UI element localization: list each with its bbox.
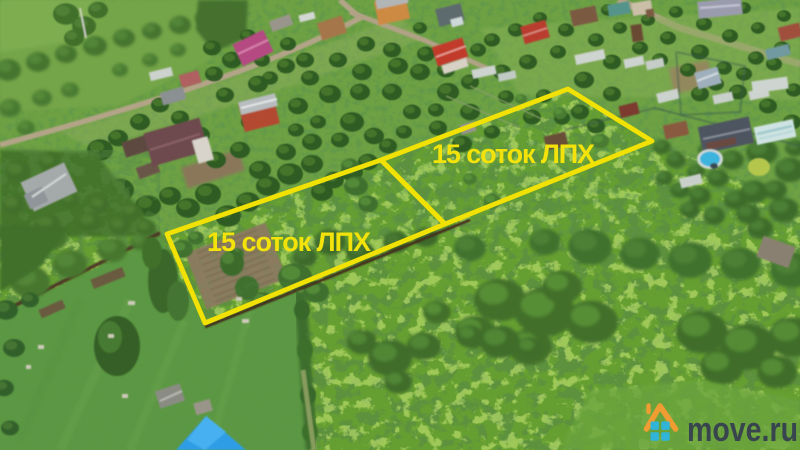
svg-text:move.ru: move.ru	[687, 411, 798, 449]
svg-text:15 соток ЛПХ: 15 соток ЛПХ	[207, 227, 371, 257]
svg-text:15 соток ЛПХ: 15 соток ЛПХ	[432, 139, 595, 169]
